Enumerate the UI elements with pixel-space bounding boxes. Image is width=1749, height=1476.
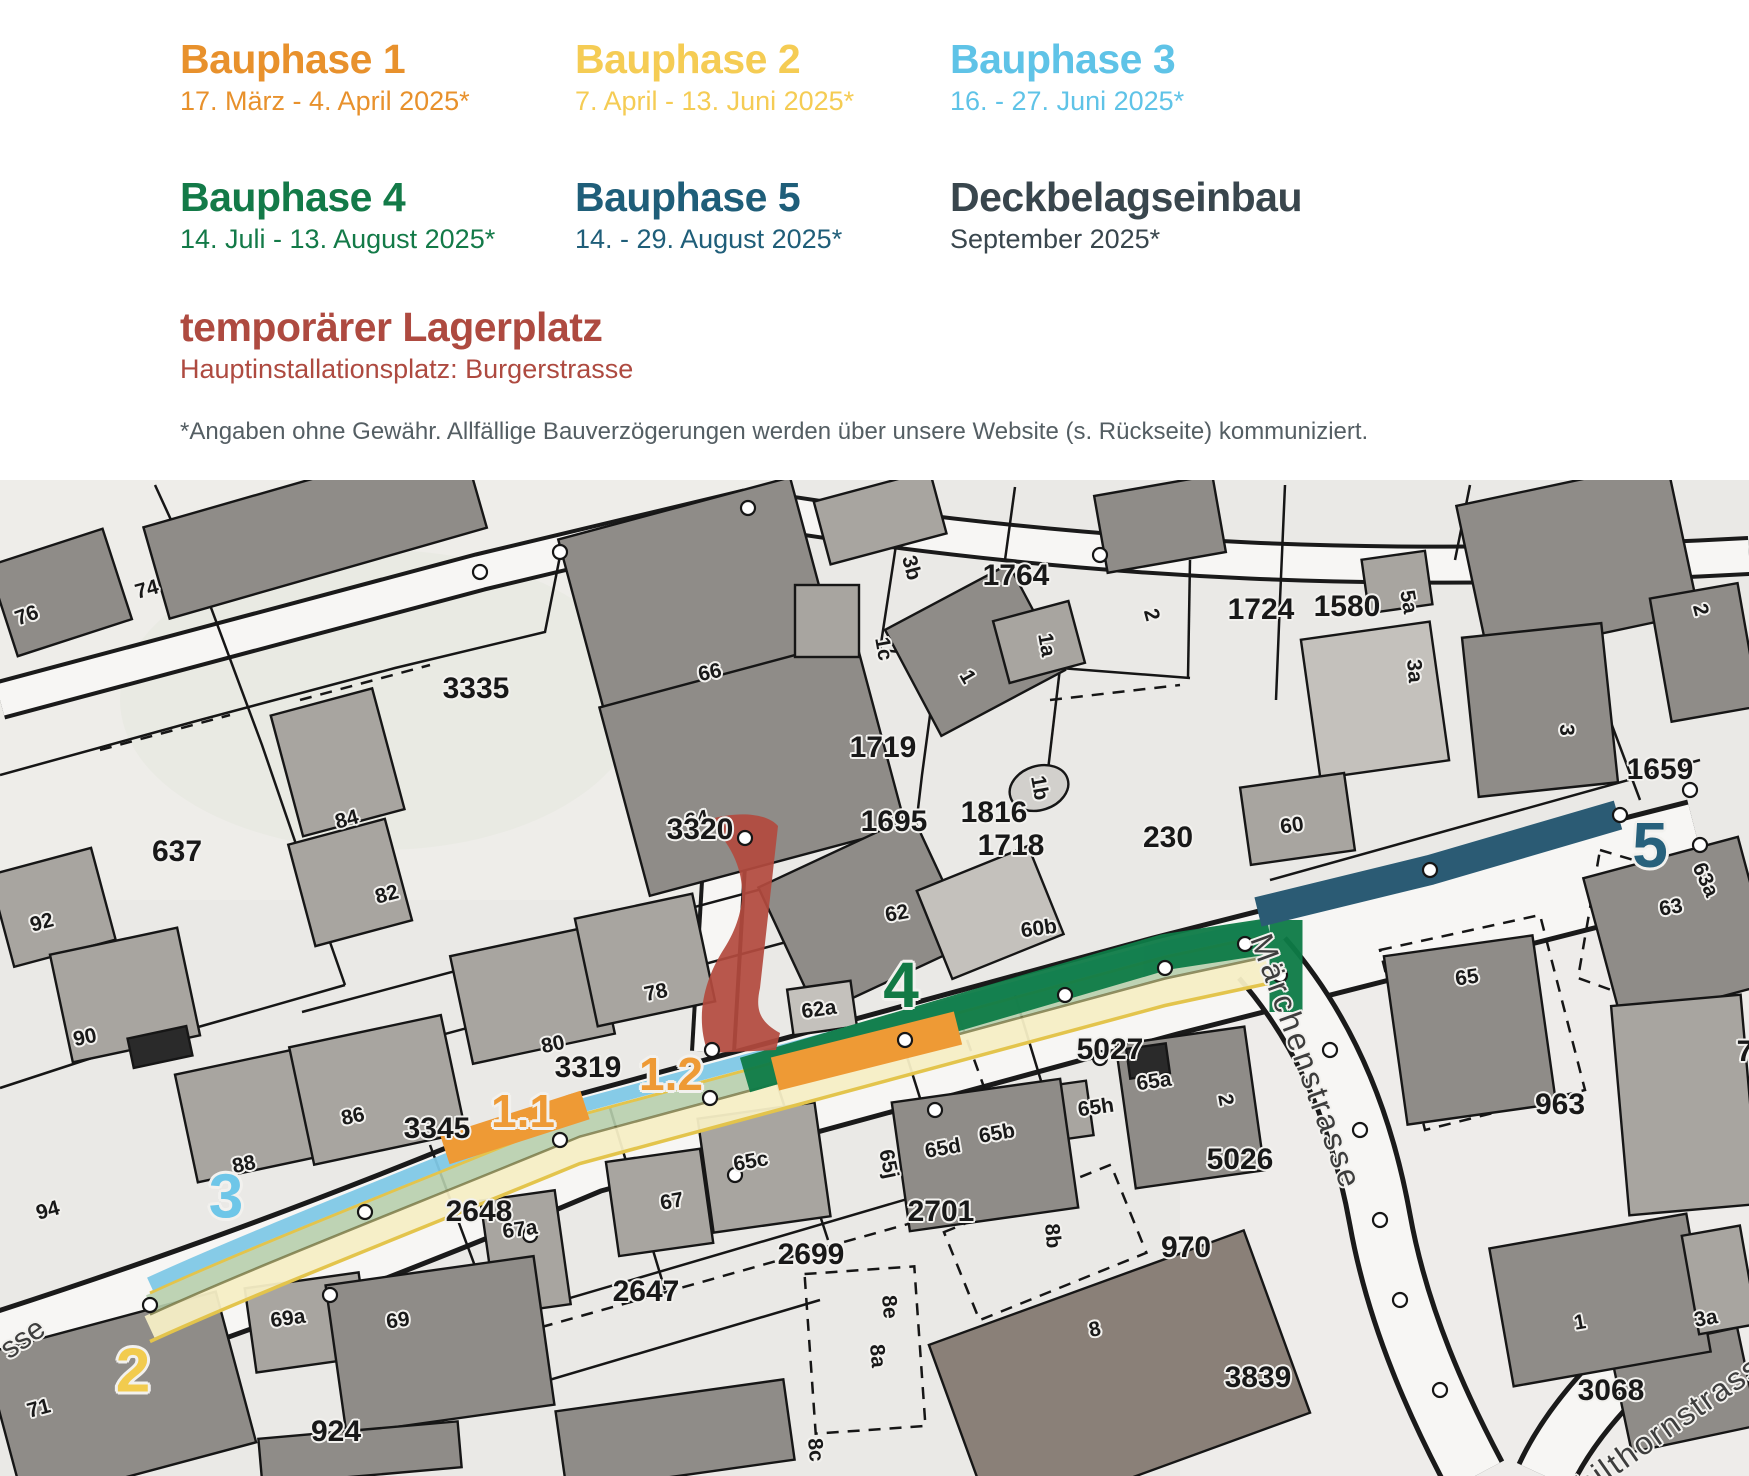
- legend-phase: Bauphase 3 16. - 27. Juni 2025*: [950, 38, 1184, 117]
- legend-phase-title: Bauphase 3: [950, 38, 1184, 81]
- construction-map: [0, 480, 1749, 1476]
- house-number-label: 3a: [1692, 1305, 1719, 1333]
- legend-phase-dates: 16. - 27. Juni 2025*: [950, 86, 1184, 117]
- phase-marker-label: 4: [883, 948, 919, 1022]
- house-number-label: 8a: [864, 1343, 890, 1368]
- parcel-number-label: 1764: [983, 559, 1050, 593]
- legend-phase: Bauphase 4 14. Juli - 13. August 2025*: [180, 176, 495, 255]
- house-number-label: 1a: [1032, 631, 1060, 658]
- legend-phase-dates: 17. März - 4. April 2025*: [180, 86, 470, 117]
- parcel-number-label: 2647: [613, 1275, 680, 1309]
- phase-marker-label: 3: [209, 1162, 243, 1233]
- house-number-label: 3a: [1401, 658, 1427, 683]
- legend-storage: temporärer Lagerplatz Hauptinstallations…: [180, 306, 633, 385]
- house-number-label: 8e: [876, 1294, 902, 1319]
- house-number-label: 78: [642, 979, 670, 1007]
- parcel-number-label: 1719: [850, 731, 917, 765]
- parcel-number-label: 1580: [1314, 590, 1381, 624]
- legend-phase: Bauphase 2 7. April - 13. Juni 2025*: [575, 38, 854, 117]
- parcel-number-label: 5026: [1207, 1143, 1274, 1177]
- house-number-label: 62: [883, 900, 910, 928]
- parcel-number-label: 924: [311, 1415, 361, 1449]
- parcel-number-label: 963: [1535, 1088, 1585, 1122]
- parcel-number-label: 1724: [1228, 593, 1295, 627]
- legend-phase-title: Bauphase 1: [180, 38, 470, 81]
- legend-phase-title: Deckbelagseinbau: [950, 176, 1302, 219]
- parcel-number-label: 2701: [908, 1195, 975, 1229]
- parcel-number-label: 3345: [404, 1112, 471, 1146]
- legend-phase-dates: 7. April - 13. Juni 2025*: [575, 86, 854, 117]
- house-number-label: 3: [1554, 724, 1578, 736]
- parcel-number-label: 3839: [1225, 1361, 1292, 1395]
- house-number-label: 90: [71, 1024, 99, 1052]
- legend-phase: Bauphase 5 14. - 29. August 2025*: [575, 176, 842, 255]
- house-number-label: 5a: [1394, 588, 1422, 615]
- phase-marker-label: 1.1: [491, 1084, 555, 1138]
- house-number-label: 8b: [1039, 1223, 1065, 1250]
- construction-phases-flyer: Bauphase 1 17. März - 4. April 2025* Bau…: [0, 0, 1749, 1476]
- house-number-label: 69: [385, 1307, 411, 1334]
- house-number-label: 62a: [800, 996, 838, 1025]
- legend-phase-title: Bauphase 5: [575, 176, 842, 219]
- house-number-label: 69a: [269, 1305, 307, 1334]
- parcel-number-label: 970: [1161, 1231, 1211, 1265]
- parcel-number-label: 637: [152, 835, 202, 869]
- legend-phase: Deckbelagseinbau September 2025*: [950, 176, 1302, 255]
- legend-phase: Bauphase 1 17. März - 4. April 2025*: [180, 38, 470, 117]
- phase-marker-label: 1.2: [639, 1047, 703, 1101]
- parcel-number-label: 1659: [1627, 753, 1694, 787]
- house-number-label: 86: [339, 1103, 367, 1131]
- house-number-label: 1c: [869, 635, 897, 662]
- parcel-number-label: 3320: [667, 813, 734, 847]
- house-number-label: 63: [1657, 894, 1684, 922]
- parcel-number-label: 2648: [446, 1195, 513, 1229]
- house-number-label: 67: [658, 1188, 685, 1216]
- parcel-number-label: 3319: [555, 1051, 622, 1085]
- legend-phase-dates: September 2025*: [950, 224, 1302, 255]
- legend-storage-title: temporärer Lagerplatz: [180, 306, 633, 349]
- parcel-number-label: 3335: [443, 672, 510, 706]
- legend-storage-subtitle: Hauptinstallationsplatz: Burgerstrasse: [180, 354, 633, 385]
- parcel-number-label: 2699: [778, 1238, 845, 1272]
- phase-marker-label: 2: [116, 1336, 150, 1407]
- parcel-number-label: 1718: [978, 829, 1045, 863]
- parcel-number-label: 1695: [861, 805, 928, 839]
- legend-phase-dates: 14. Juli - 13. August 2025*: [180, 224, 495, 255]
- parcel-number-label: 5027: [1077, 1033, 1144, 1067]
- house-number-label: 60: [1279, 812, 1305, 839]
- legend-phase-title: Bauphase 2: [575, 38, 854, 81]
- house-number-label: 65a: [1135, 1068, 1173, 1097]
- house-number-label: 65: [1454, 964, 1480, 991]
- parcel-number-label: 3068: [1578, 1374, 1645, 1408]
- parcel-number-label: 7: [1737, 1035, 1749, 1069]
- legend-disclaimer: *Angaben ohne Gewähr. Allfällige Bauverz…: [180, 418, 1368, 446]
- parcel-number-label: 230: [1143, 821, 1193, 855]
- house-number-label: 60b: [1019, 915, 1058, 944]
- legend-phase-dates: 14. - 29. August 2025*: [575, 224, 842, 255]
- legend-phase-title: Bauphase 4: [180, 176, 495, 219]
- house-number-label: 8c: [802, 1437, 828, 1462]
- house-number-label: 1b: [1025, 774, 1053, 802]
- parcel-number-label: 1816: [961, 796, 1028, 830]
- phase-marker-label: 5: [1632, 808, 1668, 882]
- house-number-label: 65h: [1076, 1094, 1115, 1123]
- house-number-label: 66: [696, 659, 724, 687]
